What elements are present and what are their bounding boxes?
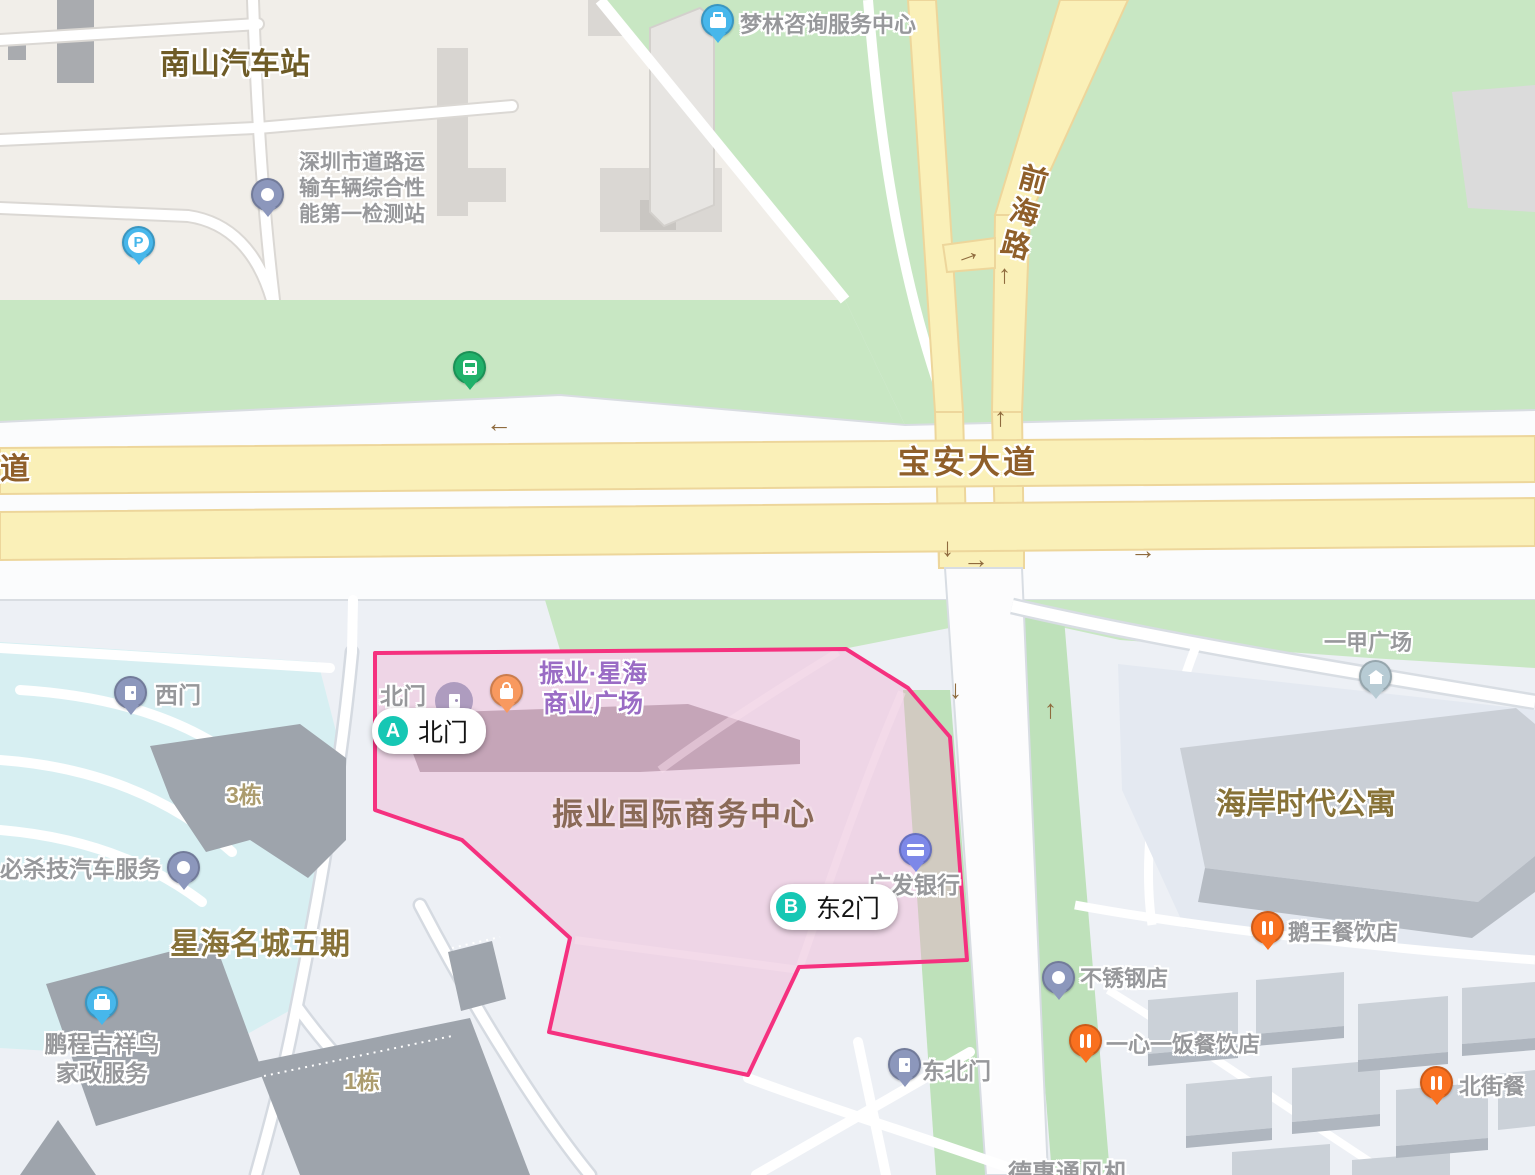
road-arrow-up-icon: ↑ bbox=[998, 261, 1011, 287]
label-zhenye-center: 振业国际商务中心 bbox=[552, 797, 816, 833]
yixin-restaurant-pin[interactable] bbox=[1069, 1024, 1102, 1057]
road-arrow-down-icon: ↓ bbox=[941, 534, 954, 560]
route-marker-a-badge: A bbox=[378, 716, 408, 746]
route-marker-b-label: 东2门 bbox=[816, 889, 880, 925]
dot-icon bbox=[177, 861, 190, 874]
west-gate-pin[interactable] bbox=[114, 676, 147, 709]
label-menglin: 梦林咨询服务中心 bbox=[740, 12, 916, 37]
label-inspection-station: 深圳市道路运 输车辆综合性 能第一检测站 bbox=[287, 150, 437, 228]
guangfa-bank-pin[interactable] bbox=[899, 833, 932, 866]
fork-spoon-icon bbox=[1260, 921, 1275, 935]
road-arrow-left-icon: ← bbox=[486, 410, 512, 436]
parking-icon: P bbox=[128, 232, 149, 253]
beijie-restaurant-pin[interactable] bbox=[1420, 1066, 1453, 1099]
road-arrow-up-icon: ↑ bbox=[994, 404, 1007, 430]
bank-card-icon bbox=[907, 844, 924, 856]
pengcheng-pin[interactable] bbox=[85, 986, 118, 1019]
label-west-gate: 西门 bbox=[155, 682, 201, 708]
door-icon bbox=[899, 1058, 910, 1072]
shopping-bag-icon bbox=[500, 688, 513, 699]
dot-icon bbox=[1052, 971, 1065, 984]
route-marker-b[interactable]: B 东2门 bbox=[770, 884, 898, 930]
road-arrow-up-icon: ↑ bbox=[1044, 696, 1057, 722]
fork-spoon-icon bbox=[1429, 1076, 1444, 1090]
menglin-pin[interactable] bbox=[701, 4, 734, 37]
label-north-gate-small: 北门 bbox=[380, 683, 426, 709]
bus-icon bbox=[463, 360, 477, 375]
label-ewang-restaurant: 鹅王餐饮店 bbox=[1288, 920, 1398, 945]
inspection-station-pin[interactable] bbox=[251, 178, 284, 211]
bisha-auto-pin[interactable] bbox=[167, 851, 200, 884]
briefcase-icon bbox=[710, 17, 726, 28]
label-beijie-restaurant: 北街餐 bbox=[1459, 1074, 1525, 1099]
road-arrow-down-icon: ↓ bbox=[949, 676, 962, 702]
road-arrow-right-icon: → bbox=[1130, 537, 1156, 563]
route-marker-b-badge: B bbox=[776, 892, 806, 922]
label-dehui-partial: 德惠通风机 bbox=[1008, 1160, 1128, 1175]
label-baoan-avenue: 宝安大道 bbox=[898, 444, 1038, 481]
door-icon bbox=[125, 686, 136, 700]
label-yixin-restaurant: 一心一饭餐饮店 bbox=[1106, 1032, 1260, 1057]
route-marker-a[interactable]: A 北门 bbox=[372, 708, 486, 754]
label-pengcheng: 鹏程吉祥鸟 家政服务 bbox=[36, 1030, 168, 1088]
door-icon bbox=[449, 694, 460, 708]
parking-pin[interactable]: P bbox=[122, 226, 155, 259]
label-building-1: 1栋 bbox=[344, 1068, 380, 1094]
ewang-restaurant-pin[interactable] bbox=[1251, 911, 1284, 944]
briefcase-icon bbox=[94, 999, 110, 1010]
zhenye-plaza-pin[interactable] bbox=[490, 674, 523, 707]
northeast-gate-pin[interactable] bbox=[888, 1048, 921, 1081]
label-bisha-auto: 必杀技汽车服务 bbox=[0, 856, 161, 882]
fork-spoon-icon bbox=[1078, 1034, 1093, 1048]
label-building-3: 3栋 bbox=[226, 782, 262, 808]
label-partial-road: 道 bbox=[0, 453, 30, 488]
label-stainless-shop: 不锈钢店 bbox=[1080, 966, 1168, 991]
house-icon bbox=[1370, 676, 1382, 684]
label-yijia-plaza: 一甲广场 bbox=[1324, 630, 1412, 655]
bus-stop-pin[interactable] bbox=[453, 351, 486, 384]
route-marker-a-label: 北门 bbox=[418, 713, 468, 749]
road-arrow-right-icon: → bbox=[963, 546, 989, 572]
map-base-tiles bbox=[0, 0, 1535, 1175]
label-haian-apartments: 海岸时代公寓 bbox=[1216, 788, 1396, 823]
label-northeast-gate: 东北门 bbox=[922, 1058, 991, 1084]
label-xinghai-mingcheng: 星海名城五期 bbox=[170, 928, 350, 963]
map-canvas[interactable]: 南山汽车站 宝安大道 前海路 道 深圳市道路运 输车辆综合性 能第一检测站 梦林… bbox=[0, 0, 1535, 1175]
yijia-plaza-pin[interactable] bbox=[1359, 660, 1392, 693]
stainless-shop-pin[interactable] bbox=[1042, 961, 1075, 994]
dot-icon bbox=[261, 188, 274, 201]
label-nanshan-station: 南山汽车站 bbox=[160, 48, 310, 83]
label-zhenye-xinghai-plaza: 振业·星海 商业广场 bbox=[518, 659, 668, 719]
